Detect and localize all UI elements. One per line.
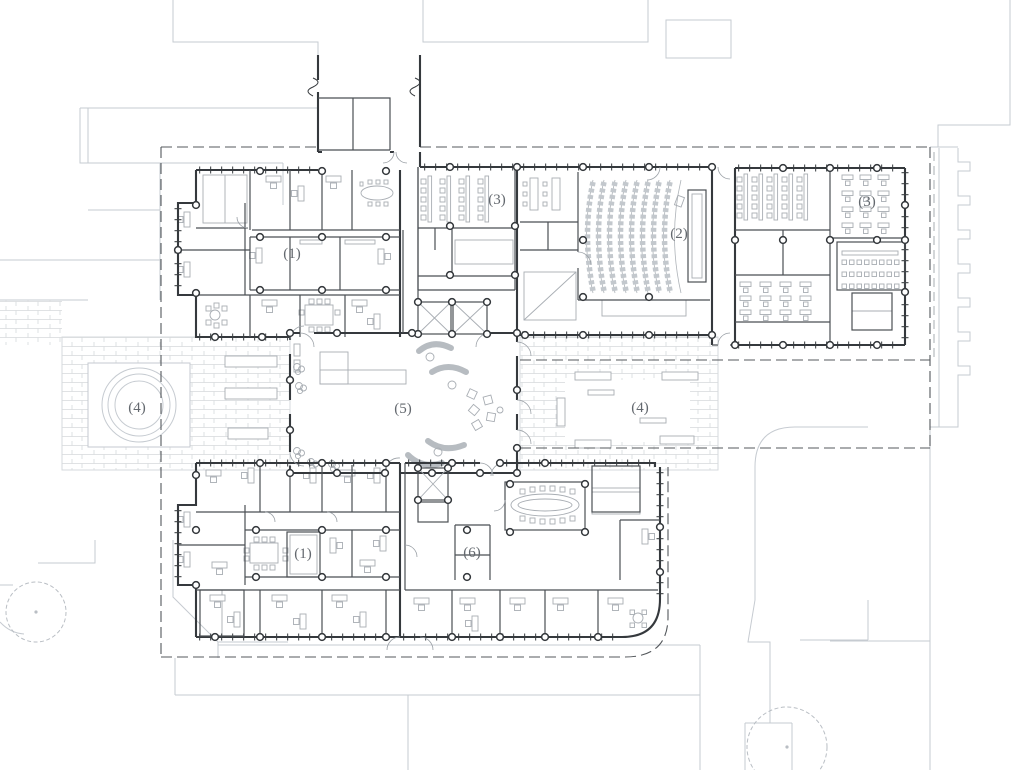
room-label-auditorium: (2)	[670, 226, 688, 242]
room-label-classroom-west: (3)	[488, 192, 506, 208]
room-label-north-suite: (1)	[283, 246, 301, 262]
tree-icon	[747, 707, 827, 770]
paving	[0, 300, 718, 470]
floor-plan: (1) (2) (3) (3) (4) (4) (5) (1) (6)	[0, 0, 1024, 770]
room-label-south-suite: (1)	[294, 546, 312, 562]
room-label-south-open-area: (6)	[463, 545, 481, 561]
room-label-courtyard-west: (4)	[128, 400, 146, 416]
room-label-classroom-east: (3)	[858, 194, 876, 210]
floor-plan-canvas: (1) (2) (3) (3) (4) (4) (5) (1) (6)	[0, 0, 1024, 770]
room-label-atrium: (5)	[394, 401, 412, 417]
tree-icon	[6, 582, 66, 642]
room-label-terrace-east: (4)	[631, 400, 649, 416]
